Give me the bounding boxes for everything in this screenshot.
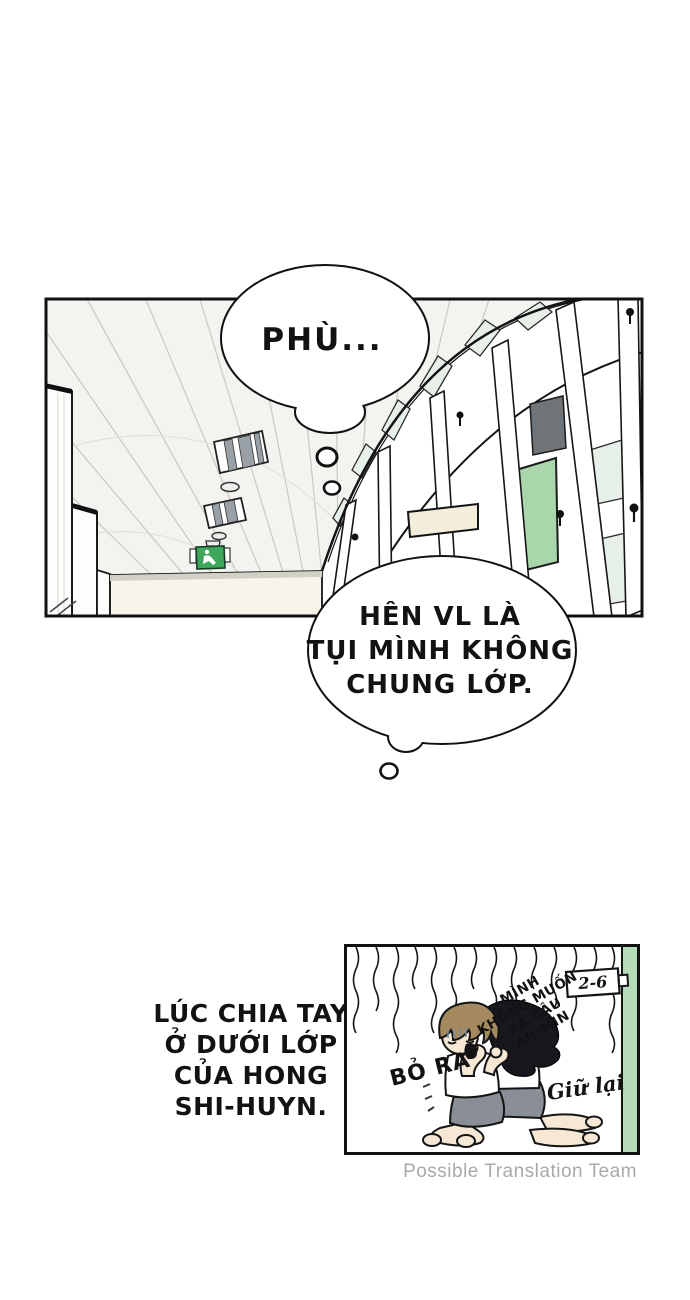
hen-bubble-line-1: HÊN VL LÀ — [359, 600, 521, 632]
hen-bubble-line-3: CHUNG LỚP. — [346, 668, 534, 700]
thought-trail-dot — [317, 448, 337, 466]
thought-trail-dot — [381, 764, 398, 779]
comic-page: PHÙ... HÊN VL LÀ TỤI MÌNH KHÔNG CHUNG LỚ… — [0, 0, 690, 1300]
narration-text: LÚC CHIA TAY Ở DƯỚI LỚP CỦA HONG SHI-HUY… — [153, 998, 349, 1121]
thought-bubble-hen: HÊN VL LÀ TỤI MÌNH KHÔNG CHUNG LỚP. — [307, 557, 575, 779]
open-dark-window — [530, 396, 566, 455]
classroom-sign-text: 2-6 — [577, 972, 608, 993]
corridor-end-wall — [110, 571, 322, 617]
comic-scene: PHÙ... HÊN VL LÀ TỤI MÌNH KHÔNG CHUNG LỚ… — [0, 0, 690, 1300]
narration-line-3: CỦA HONG — [174, 1057, 328, 1090]
narration-line-2: Ở DƯỚI LỚP — [164, 1026, 337, 1059]
thought-trail-dot — [324, 482, 340, 495]
narration-line-4: SHI-HUYN. — [175, 1092, 328, 1121]
round-lamp-icon-2 — [212, 533, 226, 540]
round-lamp-icon — [221, 483, 239, 492]
translation-team-watermark: Possible Translation Team — [403, 1161, 637, 1182]
hen-bubble-line-2: TỤI MÌNH KHÔNG — [307, 634, 574, 666]
narration-line-1: LÚC CHIA TAY — [153, 998, 349, 1028]
flashback-panel: 2-6 — [346, 946, 640, 1154]
phu-bubble-text: PHÙ... — [261, 321, 382, 358]
